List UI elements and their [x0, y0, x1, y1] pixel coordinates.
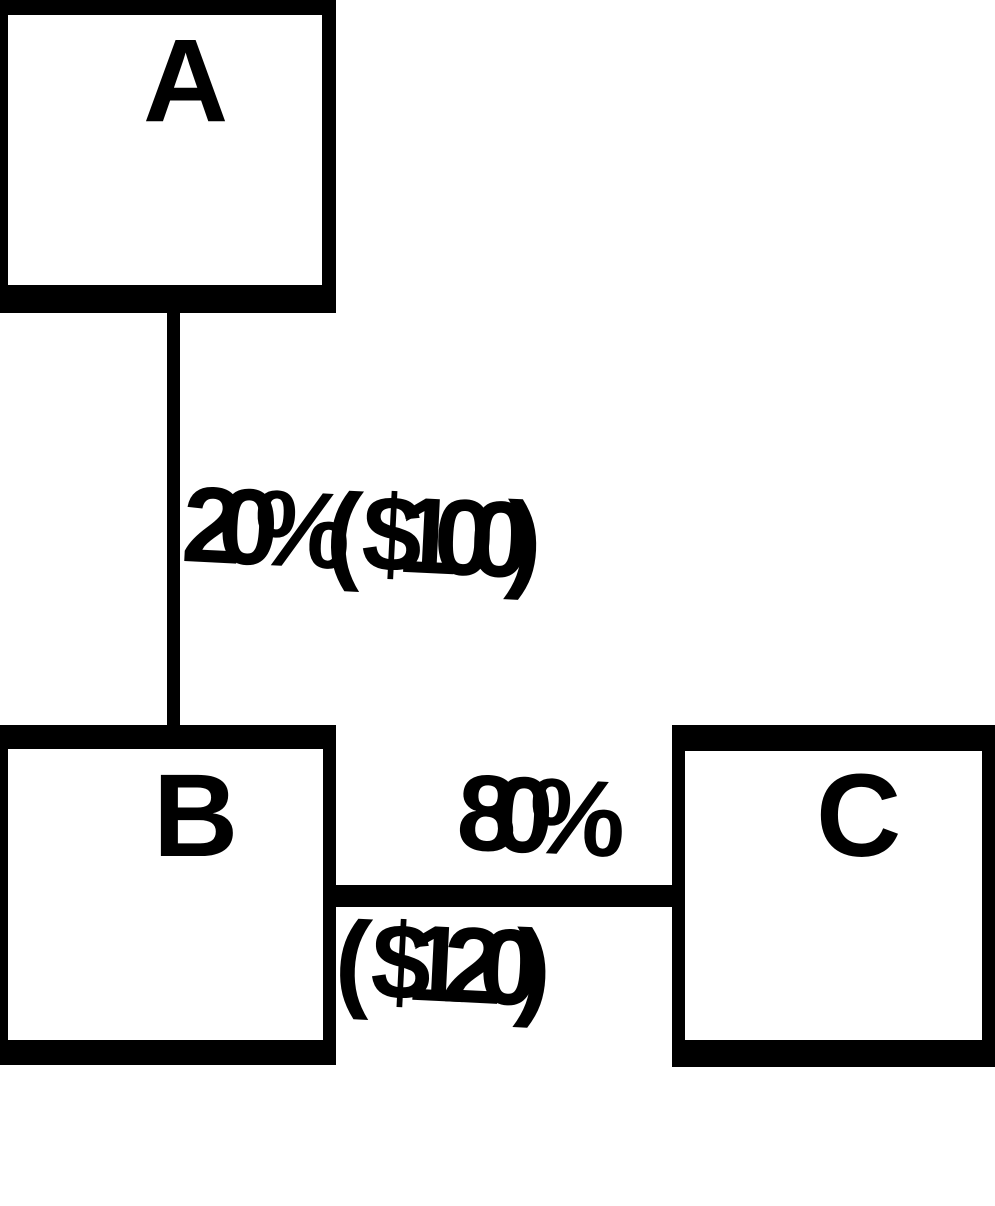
ownership-diagram: A B C 20% ($100) 80% ($120) [0, 0, 995, 1206]
edge-a-b-label: 20% ($100) [180, 470, 545, 595]
edge-b-c-percent-label: 80% [455, 758, 568, 871]
node-c-label: C [816, 757, 901, 875]
edge-b-c-amount-label: ($120) [333, 905, 554, 1023]
node-a-label: A [143, 22, 228, 140]
edge-a-b-line [167, 313, 180, 725]
node-b-label: B [153, 757, 238, 875]
